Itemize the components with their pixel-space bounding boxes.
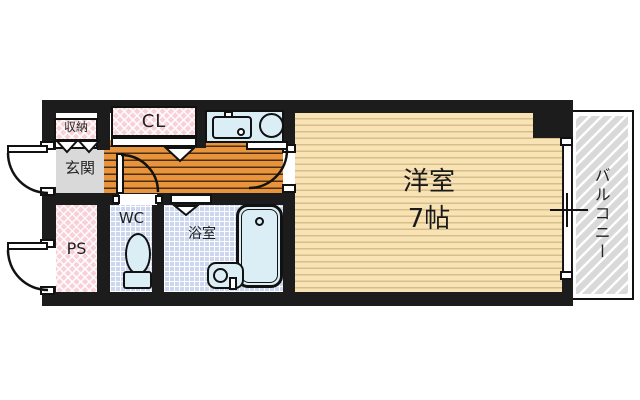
mainroom-door-leaf (246, 141, 288, 150)
bath-door-track (170, 194, 212, 204)
storage-door-track (54, 140, 98, 149)
wc-label: WC (110, 210, 153, 227)
door-jamb (112, 195, 120, 204)
floorplan-page: { "floorplan": { "type": "apartment-1K-f… (0, 0, 640, 400)
main-room-label: 洋室 7帖 (295, 164, 563, 238)
ps-door-opening (42, 248, 56, 286)
toilet-bowl-icon (125, 233, 151, 275)
wall-top-right-column (533, 100, 573, 138)
closet-door-track (111, 137, 197, 147)
entrance-door-opening (42, 150, 56, 187)
wc-door-leaf (116, 153, 124, 194)
entrance-door-leaf (7, 145, 48, 153)
door-jamb (40, 286, 55, 295)
wall-bottom (42, 292, 573, 306)
window-center-mark-v (566, 193, 568, 227)
door-jamb (155, 195, 163, 204)
door-jamb (282, 184, 296, 193)
closet-label: CL (111, 112, 197, 132)
door-jamb (40, 187, 55, 196)
wall-wc-bath-divider (152, 193, 164, 292)
entrance-label: 玄関 (56, 160, 104, 177)
balcony-label: バルコニー (592, 144, 610, 284)
stove-burner-icon (259, 113, 284, 138)
pipe-space-label: PS (56, 240, 97, 258)
bathroom-label: 浴室 (168, 227, 236, 242)
ps-door-leaf (7, 242, 48, 250)
window-jamb (560, 271, 573, 280)
main-room-name: 洋室 (295, 164, 563, 201)
wc-door-opening (119, 194, 157, 205)
bathtub-drain-icon (255, 217, 264, 226)
water-heater-pipe-icon (229, 277, 237, 290)
wall-storage-cl-divider (97, 100, 110, 150)
water-heater-dial-icon (213, 268, 228, 283)
sink-icon (212, 116, 252, 139)
main-room-size: 7帖 (295, 201, 563, 238)
wall-ps-wc-divider (97, 193, 110, 292)
toilet-tank-icon (123, 271, 152, 289)
storage-label: 収納 (54, 121, 98, 134)
sink-drain-icon (237, 128, 245, 136)
